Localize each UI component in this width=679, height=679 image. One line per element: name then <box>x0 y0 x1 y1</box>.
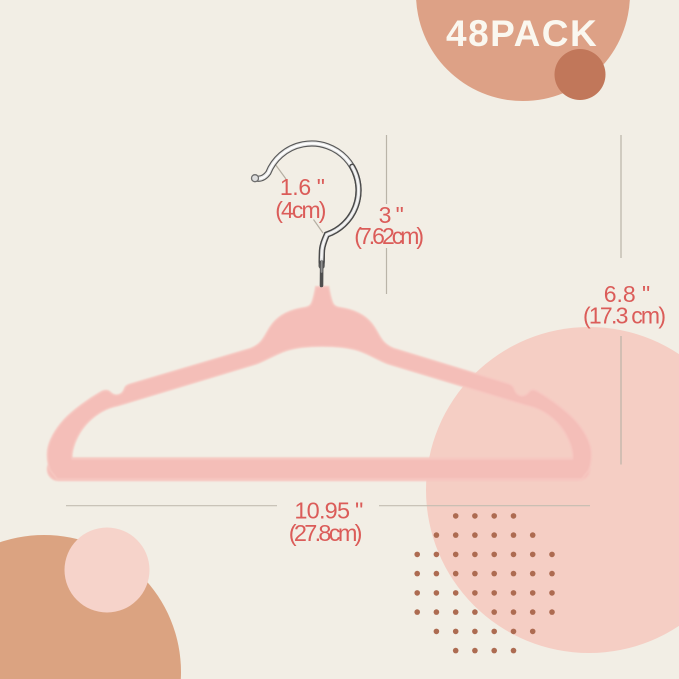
svg-text:(4cm): (4cm) <box>275 197 326 223</box>
svg-text:(27.8cm): (27.8cm) <box>289 520 363 546</box>
svg-text:48PACK: 48PACK <box>446 13 598 54</box>
svg-text:(17.3 cm): (17.3 cm) <box>583 303 666 329</box>
svg-text:(7.62cm): (7.62cm) <box>354 223 424 249</box>
